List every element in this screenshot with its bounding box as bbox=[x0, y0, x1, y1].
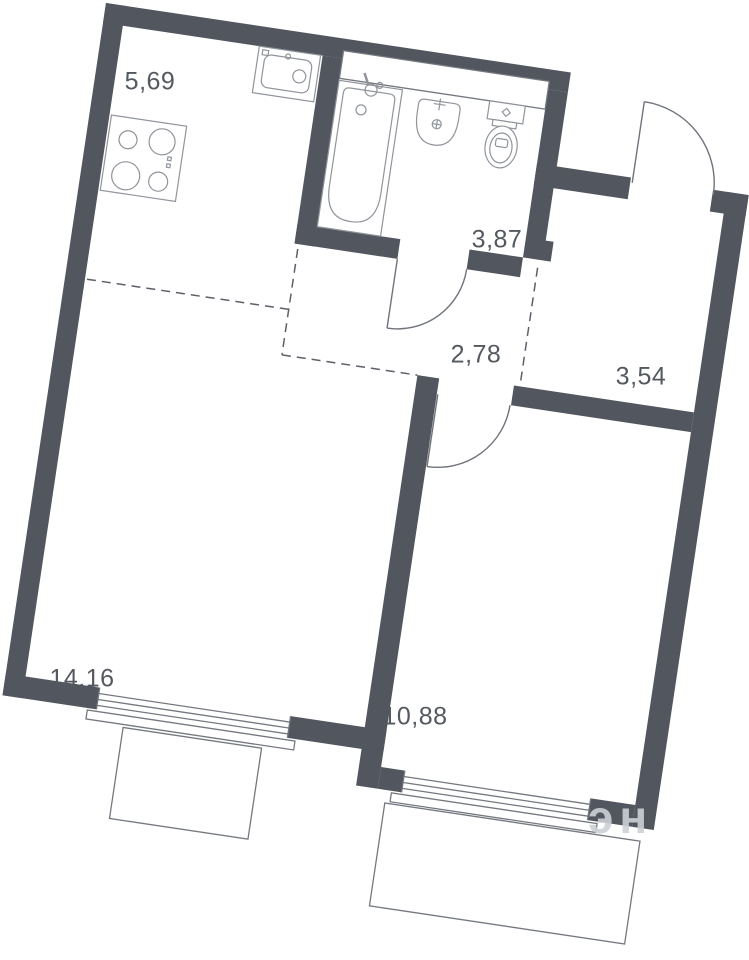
room-label-hallway: 2,78 bbox=[451, 341, 502, 370]
bedroom-bottom-wall-left bbox=[378, 767, 405, 792]
room-label-living-room: 14,16 bbox=[49, 665, 114, 694]
room-label-kitchen: 5,69 bbox=[125, 68, 176, 97]
floor-plan-canvas: 5,69 3,87 2,78 3,54 14,16 10,88 эн bbox=[0, 0, 749, 960]
stove-icon bbox=[100, 115, 186, 201]
kitchen-zone-dashed-line bbox=[87, 279, 289, 309]
kitchen-sink-icon bbox=[252, 46, 320, 102]
living-room-window bbox=[86, 686, 299, 750]
room-label-bathroom: 3,87 bbox=[472, 226, 523, 255]
bathroom-door bbox=[387, 259, 467, 339]
right-wall bbox=[632, 192, 749, 830]
entrance-door bbox=[632, 102, 725, 195]
washbasin-icon bbox=[413, 95, 461, 148]
bedroom-door bbox=[427, 394, 510, 477]
entry-zone-dashed-line bbox=[520, 268, 538, 387]
toilet-icon bbox=[480, 101, 525, 171]
room-label-entry: 3,54 bbox=[616, 363, 667, 392]
living-room-balcony bbox=[110, 727, 262, 839]
room-label-bedroom: 10,88 bbox=[382, 703, 447, 732]
bedroom-window bbox=[390, 769, 601, 832]
watermark-text: эн bbox=[588, 794, 653, 840]
left-wall bbox=[3, 3, 126, 698]
hall-zone-dashed-line-horizontal bbox=[282, 355, 417, 375]
hall-zone-dashed-line-vertical bbox=[282, 249, 298, 355]
bedroom-top-wall bbox=[511, 385, 694, 432]
